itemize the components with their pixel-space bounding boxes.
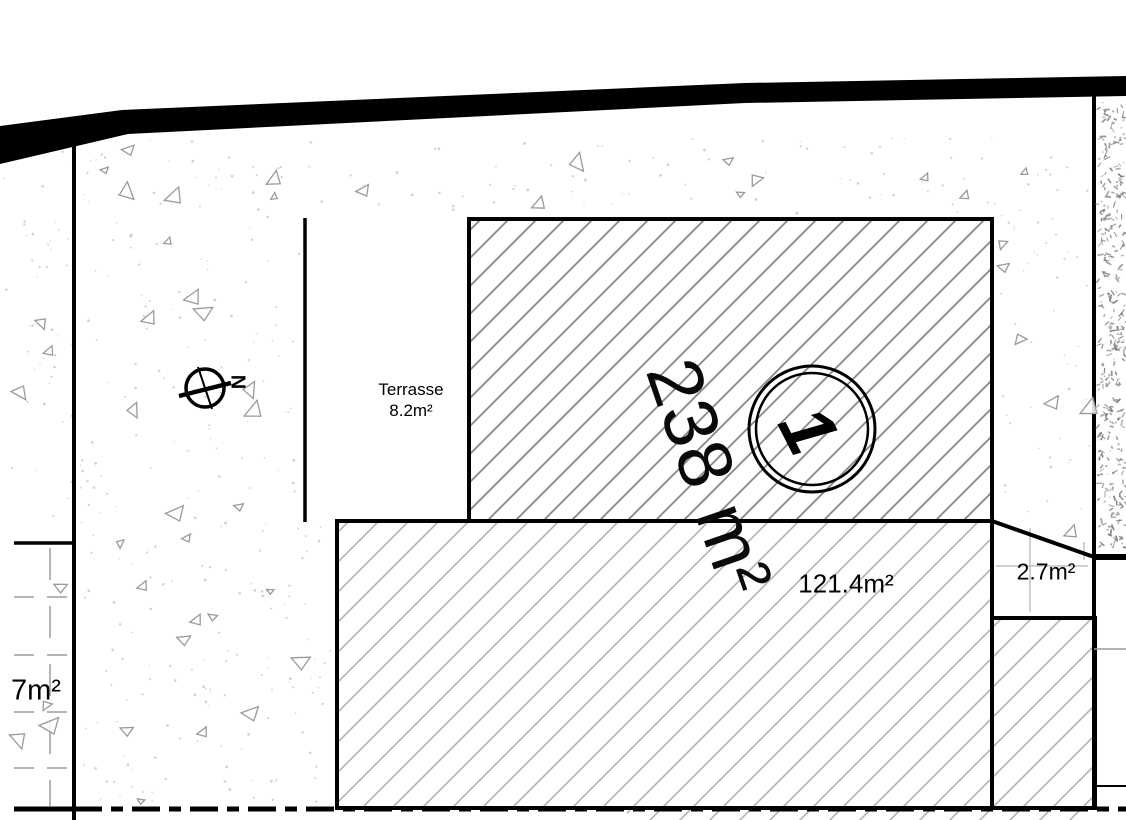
vegetation-triangles-mark [1019, 168, 1028, 177]
gravel-strip-mark [1105, 157, 1111, 160]
gravel-strip-mark [1095, 405, 1099, 408]
vegetation-triangles-mark [136, 796, 145, 805]
gravel-strip-mark [1123, 119, 1125, 121]
gravel-strip-mark [1114, 232, 1117, 237]
gravel-strip-mark [1117, 294, 1120, 297]
vegetation-triangles-mark [189, 614, 203, 627]
gravel-strip-mark [1104, 404, 1108, 407]
vegetation-triangles-mark [240, 705, 258, 722]
grass-speckles-mark [220, 745, 222, 747]
gravel-strip-mark [1114, 119, 1117, 121]
grass-speckles-mark [94, 767, 97, 770]
grass-speckles-mark [462, 196, 464, 198]
gravel-strip-mark [1117, 341, 1120, 343]
gravel-strip-mark [1104, 375, 1106, 377]
grass-speckles-mark [57, 335, 58, 336]
gravel-strip-mark [1122, 359, 1125, 362]
gravel-strip-mark [1118, 399, 1119, 400]
gravel-strip-mark [1099, 525, 1101, 527]
grass-speckles-mark [155, 243, 157, 245]
grass-speckles-mark [231, 175, 234, 178]
grass-speckles-mark [54, 354, 56, 356]
grass-speckles-mark [526, 189, 529, 192]
grass-speckles-mark [216, 447, 218, 449]
vegetation-triangles-mark [182, 289, 200, 306]
grass-speckles-mark [142, 693, 144, 695]
grass-speckles-mark [32, 233, 35, 236]
gravel-strip-mark [1110, 543, 1112, 545]
grass-speckles-mark [880, 194, 881, 195]
vegetation-triangles-mark [116, 537, 127, 548]
gravel-strip-mark [1100, 433, 1103, 434]
grass-speckles-mark [870, 152, 873, 155]
gravel-strip-mark [1110, 413, 1112, 415]
grass-speckles-mark [311, 677, 312, 678]
gravel-strip-mark [1106, 488, 1109, 492]
grass-speckles-mark [209, 689, 211, 691]
gravel-strip-mark [1112, 334, 1115, 338]
gravel-strip-mark [1100, 176, 1101, 177]
gravel-strip-mark [1121, 326, 1124, 329]
grass-speckles-mark [91, 441, 94, 444]
vegetation-triangles-mark [288, 650, 310, 671]
grass-speckles-mark [100, 475, 102, 477]
grass-speckles-mark [963, 178, 965, 180]
grass-speckles-mark [301, 731, 303, 733]
gravel-strip-mark [1115, 384, 1120, 385]
gravel-strip-mark [1121, 127, 1123, 129]
grass-speckles-mark [292, 459, 295, 462]
gravel-strip-mark [1102, 272, 1106, 273]
grass-speckles-mark [270, 780, 273, 783]
north-arrow [179, 367, 231, 409]
gravel-strip-mark [1100, 381, 1103, 383]
gravel-strip-mark [1118, 178, 1122, 180]
vegetation-triangles-mark [165, 505, 183, 521]
gravel-strip-mark [1101, 363, 1103, 365]
grass-speckles-mark [254, 589, 257, 592]
gravel-strip-mark [1108, 435, 1109, 440]
gravel-strip-mark [1109, 497, 1110, 498]
grass-speckles-mark [1086, 285, 1088, 287]
grass-speckles-mark [1078, 345, 1079, 346]
grass-speckles-mark [277, 167, 279, 169]
grass-speckles-mark [127, 763, 130, 766]
gravel-strip-mark [1103, 544, 1105, 546]
grass-speckles-mark [685, 184, 687, 186]
grass-speckles-mark [765, 172, 767, 174]
grass-speckles-mark [1049, 173, 1051, 175]
grass-speckles-mark [495, 166, 496, 167]
grass-speckles-mark [1031, 407, 1032, 408]
grass-speckles-mark [1002, 395, 1004, 397]
gravel-strip-mark [1119, 139, 1121, 140]
grass-speckles-mark [124, 396, 126, 398]
grass-speckles-mark [690, 197, 692, 199]
vegetation-triangles-mark [196, 727, 208, 738]
grass-speckles-mark [1059, 437, 1061, 439]
grass-speckles-mark [27, 401, 29, 403]
gravel-strip-mark [1111, 128, 1114, 133]
grass-speckles-mark [215, 177, 217, 179]
grass-speckles-mark [100, 799, 101, 800]
grass-speckles-mark [261, 590, 263, 592]
gravel-strip-mark [1113, 246, 1115, 248]
gravel-strip-mark [1116, 181, 1118, 183]
grass-speckles-mark [41, 185, 44, 188]
vegetation-triangles-mark [356, 185, 369, 197]
gravel-strip-mark [1098, 158, 1100, 160]
grass-speckles-mark [293, 490, 295, 492]
grass-speckles-mark [396, 171, 399, 174]
terrace-name: Terrasse [352, 379, 470, 400]
vegetation-triangles-mark [175, 632, 191, 647]
gravel-strip-mark [1104, 314, 1106, 317]
grass-speckles-mark [622, 193, 623, 194]
gravel-strip-mark [1105, 322, 1109, 326]
grass-speckles-mark [42, 358, 44, 360]
grass-speckles-mark [5, 288, 7, 290]
vegetation-triangles-mark [162, 187, 183, 207]
gravel-strip-mark [1111, 340, 1112, 344]
grass-speckles-mark [112, 239, 114, 241]
grass-speckles-mark [927, 191, 929, 193]
grass-speckles-mark [218, 475, 221, 478]
grass-speckles-mark [270, 607, 272, 609]
left-area-label: 7m² [11, 675, 61, 708]
grass-speckles-mark [1000, 293, 1001, 294]
grass-speckles-mark [795, 212, 798, 215]
grass-speckles-mark [493, 201, 495, 203]
gravel-strip-mark [1110, 406, 1114, 407]
vegetation-triangles-mark [11, 384, 31, 404]
grass-speckles-mark [236, 654, 238, 656]
grass-speckles-mark [131, 786, 133, 788]
vegetation-triangles-mark [191, 301, 213, 322]
grass-speckles-mark [991, 137, 992, 138]
vegetation-triangles-mark [735, 189, 744, 198]
vegetation-triangles-mark [119, 181, 136, 199]
grass-speckles-mark [1050, 466, 1053, 469]
gravel-strip-mark [1099, 294, 1104, 296]
gravel-strip-mark [1098, 498, 1100, 500]
grass-speckles-mark [118, 558, 119, 559]
grass-speckles-mark [169, 665, 171, 667]
vegetation-triangles-mark [750, 173, 765, 186]
gravel-strip-mark [1105, 197, 1111, 198]
gravel-strip-mark [1103, 407, 1108, 408]
grass-speckles-mark [267, 667, 268, 668]
grass-speckles-mark [290, 408, 292, 410]
gravel-strip-mark [1098, 229, 1102, 232]
gravel-strip-mark [1118, 378, 1119, 379]
grass-speckles-mark [219, 392, 221, 394]
grass-speckles-mark [1019, 210, 1021, 212]
gravel-strip-mark [1111, 378, 1114, 381]
grass-speckles-mark [250, 583, 252, 585]
grass-speckles-mark [247, 733, 250, 736]
gravel-strip-mark [1102, 454, 1103, 458]
grass-speckles-mark [191, 669, 193, 671]
grass-speckles-mark [208, 427, 210, 429]
grass-speckles-mark [221, 188, 222, 189]
grass-speckles-mark [523, 142, 526, 145]
grass-speckles-mark [88, 504, 90, 506]
vegetation-triangles-mark [100, 166, 109, 174]
gravel-strip-mark [1102, 483, 1104, 488]
gravel-strip-mark [1104, 501, 1106, 504]
grass-speckles-mark [97, 722, 99, 724]
grass-speckles-mark [228, 788, 231, 791]
grass-speckles-mark [107, 275, 108, 276]
grass-speckles-mark [90, 160, 92, 162]
gravel-strip [1095, 102, 1126, 549]
gravel-strip-mark [1113, 359, 1114, 360]
grass-speckles-mark [280, 166, 282, 168]
gravel-strip-mark [1115, 372, 1117, 376]
grass-speckles-mark [305, 535, 307, 537]
grass-speckles-mark [942, 184, 944, 186]
gravel-strip-mark [1097, 474, 1103, 475]
grass-speckles-mark [154, 756, 157, 759]
grass-speckles-mark [799, 141, 800, 142]
gravel-strip-mark [1122, 111, 1123, 117]
grass-speckles-mark [208, 424, 210, 426]
grass-speckles-mark [151, 800, 153, 802]
gravel-strip-mark [1109, 374, 1110, 377]
vegetation-triangles-mark [241, 400, 264, 422]
annex-strip-footprint [992, 618, 1095, 808]
gravel-strip-mark [1105, 379, 1107, 381]
grass-speckles-mark [205, 688, 207, 690]
gravel-strip-mark [1111, 529, 1112, 535]
grass-speckles-mark [29, 325, 31, 327]
grass-speckles-mark [883, 173, 885, 175]
gravel-strip-mark [1097, 107, 1101, 110]
grass-speckles-mark [1045, 169, 1047, 171]
grass-speckles-mark [105, 670, 107, 672]
grass-speckles-mark [1027, 183, 1030, 186]
grass-speckles-mark [949, 138, 951, 140]
gravel-strip-mark [1110, 235, 1111, 238]
gravel-strip-mark [1102, 175, 1104, 177]
grass-speckles-mark [275, 779, 277, 781]
grass-speckles-mark [572, 191, 574, 193]
vegetation-triangles-mark [136, 581, 148, 592]
gravel-strip-mark [1111, 513, 1112, 517]
gravel-strip-mark [1100, 435, 1102, 437]
gravel-strip-mark [1116, 514, 1119, 515]
grass-speckles-mark [201, 258, 203, 260]
grass-speckles-mark [206, 260, 207, 261]
grass-speckles-mark [95, 159, 97, 161]
grass-speckles-mark [597, 145, 599, 147]
grass-speckles-mark [84, 194, 85, 195]
grass-speckles-mark [253, 341, 254, 342]
grass-speckles-mark [172, 386, 174, 388]
gravel-strip-mark [1118, 277, 1120, 280]
grass-speckles-mark [1038, 447, 1039, 448]
grass-speckles-mark [1064, 355, 1066, 357]
grass-speckles-mark [1086, 190, 1088, 192]
grass-speckles-mark [230, 315, 233, 318]
grass-speckles-mark [1030, 341, 1032, 343]
gravel-strip-mark [1121, 255, 1124, 256]
grass-speckles-mark [225, 660, 227, 662]
grass-speckles-mark [950, 157, 952, 159]
gravel-strip-mark [1102, 244, 1103, 245]
gravel-strip-mark [1113, 142, 1119, 143]
grass-speckles-mark [225, 766, 228, 769]
grass-speckles-mark [166, 724, 169, 727]
grass-speckles-mark [252, 780, 253, 781]
gravel-strip-mark [1110, 344, 1111, 345]
grass-speckles-mark [489, 184, 491, 186]
grass-speckles-mark [583, 202, 584, 203]
grass-speckles-mark [952, 203, 954, 205]
grass-speckles-mark [1055, 234, 1057, 236]
grass-speckles-mark [178, 291, 180, 293]
grass-speckles-mark [308, 639, 309, 640]
grass-speckles-mark [141, 295, 143, 297]
grass-speckles-mark [1053, 310, 1055, 312]
gravel-strip-mark [1106, 354, 1112, 356]
grass-speckles-mark [1001, 293, 1002, 294]
grass-speckles-mark [111, 649, 114, 652]
gravel-strip-mark [1100, 415, 1104, 417]
gravel-strip-mark [1104, 111, 1106, 113]
grass-speckles-mark [247, 421, 248, 422]
gravel-strip-mark [1109, 483, 1111, 485]
grass-speckles-mark [572, 175, 574, 177]
vegetation-triangles-mark [233, 501, 244, 511]
grass-speckles-mark [27, 351, 29, 353]
grass-speckles-mark [252, 166, 254, 168]
grass-speckles-mark [134, 363, 136, 365]
grass-speckles-mark [438, 148, 441, 151]
gravel-strip-mark [1105, 465, 1107, 466]
grass-speckles-mark [1037, 174, 1039, 176]
gravel-strip-mark [1114, 361, 1115, 365]
gravel-strip-mark [1100, 465, 1103, 469]
grass-speckles-mark [188, 450, 190, 452]
grass-speckles-mark [119, 796, 120, 797]
gravel-strip-mark [1119, 225, 1121, 228]
site-plan: Terrasse 8.2m² 238 m² 1 121.4m² 2.7m² 7m… [0, 0, 1126, 820]
grass-speckles-mark [259, 550, 261, 552]
gravel-strip-mark [1119, 196, 1121, 198]
gravel-strip-mark [1116, 436, 1117, 439]
gravel-strip-mark [1112, 110, 1114, 112]
gravel-strip-mark [1122, 426, 1125, 428]
grass-speckles-mark [132, 233, 134, 235]
grass-speckles-mark [1005, 491, 1006, 492]
grass-speckles-mark [119, 623, 122, 626]
grass-speckles-mark [981, 157, 983, 159]
gravel-strip-mark [1102, 102, 1103, 103]
grass-speckles-mark [288, 681, 289, 682]
grass-speckles-mark [1004, 484, 1006, 486]
gravel-strip-mark [1123, 340, 1124, 341]
grass-speckles-mark [145, 327, 147, 329]
gravel-strip-mark [1101, 518, 1102, 524]
grass-speckles-mark [869, 196, 871, 198]
grass-speckles-mark [81, 459, 83, 461]
grass-speckles-mark [315, 800, 317, 802]
grass-speckles-mark [54, 222, 55, 223]
grass-speckles-mark [111, 684, 113, 686]
vegetation-triangles-mark [722, 155, 733, 166]
grass-speckles-mark [193, 694, 196, 697]
vegetation-triangles-mark [1062, 525, 1079, 541]
grass-speckles-mark [67, 238, 69, 240]
grass-speckles-mark [81, 470, 84, 473]
grass-speckles-mark [152, 792, 153, 793]
grass-speckles-mark [268, 260, 270, 262]
gravel-strip-mark [1116, 185, 1118, 187]
grass-speckles-mark [602, 145, 604, 147]
grass-speckles-mark [113, 601, 116, 604]
gravel-strip-mark [1116, 217, 1118, 219]
grass-speckles-mark [221, 366, 223, 368]
gravel-strip-mark [1107, 116, 1111, 121]
grass-speckles-mark [434, 147, 436, 149]
grass-speckles-mark [220, 526, 222, 528]
gravel-strip-mark [1113, 166, 1118, 168]
grass-speckles-mark [179, 316, 182, 319]
gravel-strip-mark [1097, 344, 1102, 346]
gravel-strip-mark [1107, 150, 1108, 153]
grass-speckles-mark [81, 522, 82, 523]
gravel-strip-mark [1110, 426, 1114, 427]
grass-speckles-mark [320, 526, 322, 528]
gravel-strip-mark [1107, 382, 1110, 387]
vegetation-triangles-mark [162, 237, 172, 246]
grass-speckles-mark [1028, 511, 1029, 512]
gravel-strip-mark [1111, 323, 1114, 324]
grass-speckles-mark [1045, 242, 1047, 244]
gravel-strip-mark [1099, 224, 1100, 225]
grass-speckles-mark [249, 228, 250, 229]
grass-speckles-mark [39, 266, 41, 268]
grass-speckles-mark [49, 383, 51, 385]
gravel-strip-mark [1100, 438, 1102, 440]
vegetation-triangles-mark [263, 171, 283, 190]
grass-speckles-mark [1013, 226, 1014, 227]
plan-drawing [0, 0, 1126, 820]
grass-speckles-mark [452, 205, 454, 207]
grass-speckles-mark [195, 177, 196, 178]
grass-speckles-mark [315, 766, 317, 768]
grass-speckles-mark [204, 579, 207, 582]
grass-speckles-mark [891, 138, 892, 139]
side-area-label: 2.7m² [1017, 559, 1076, 586]
grass-speckles-mark [264, 457, 266, 459]
grass-speckles-mark [248, 360, 250, 362]
gravel-strip-mark [1106, 262, 1111, 265]
grass-speckles-mark [113, 781, 115, 783]
grass-speckles-mark [277, 470, 278, 471]
grass-speckles-mark [241, 457, 243, 459]
gravel-strip-mark [1096, 384, 1100, 385]
grass-speckles-mark [209, 566, 211, 568]
grass-speckles-mark [312, 692, 314, 694]
grass-speckles-mark [708, 158, 710, 160]
gravel-strip-mark [1101, 181, 1102, 184]
grass-speckles-mark [257, 208, 260, 211]
grass-speckles-mark [138, 263, 140, 265]
gravel-strip-mark [1121, 471, 1123, 476]
